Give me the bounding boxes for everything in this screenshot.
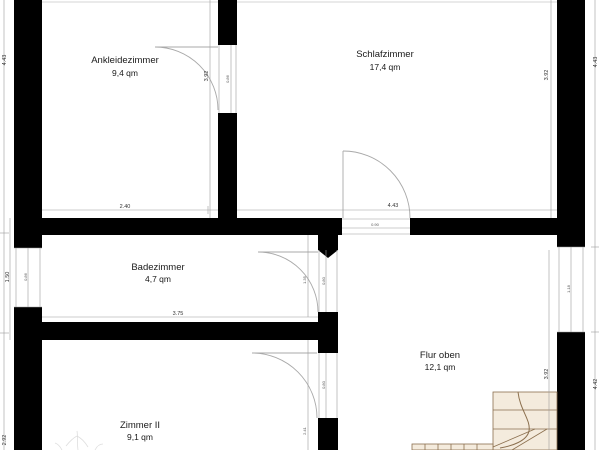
dim-zimmer2-door-offset: 2.41: [302, 426, 307, 435]
dim-left-outer-bottom: 2.92: [2, 435, 8, 446]
wall-bad-zimmer-divider: [14, 322, 318, 340]
room-area-schlafzimmer: 17,4 qm: [370, 62, 401, 72]
wall-middle-left: [14, 218, 342, 235]
floor-plan-canvas: 4.43 1.50 0.86 2.92 3.92 0.86 2.40 4.43 …: [0, 0, 600, 450]
dim-right-inner-bottom: 3.92: [544, 369, 550, 380]
wall-flur-stub-miter: [318, 250, 338, 258]
room-name-zimmer-2: Zimmer II: [120, 420, 160, 431]
wall-flur-stub-bottom: [318, 418, 338, 450]
room-name-flur-oben: Flur oben: [420, 350, 460, 361]
wall-right-lower: [557, 332, 585, 450]
door-swing-arc: [252, 353, 317, 418]
dim-bad-door-offset: 1.35: [302, 275, 307, 284]
plant-sketch-watermark: [55, 431, 103, 450]
dim-top-door-width: 0.86: [225, 74, 230, 83]
dim-left-outer-top: 4.43: [2, 55, 8, 66]
wall-left-upper: [14, 0, 42, 248]
walls: [14, 0, 585, 450]
stairs-upper-flight: [493, 392, 557, 450]
room-name-schlafzimmer: Schlafzimmer: [356, 49, 414, 60]
dim-right-outer-bottom: 4.42: [593, 379, 599, 390]
dim-left-inner-mid: 1.50: [5, 272, 11, 283]
room-area-ankleidezimmer: 9,4 qm: [112, 68, 138, 78]
room-area-flur-oben: 12,1 qm: [425, 362, 456, 372]
room-labels: Ankleidezimmer 9,4 qm Schlafzimmer 17,4 …: [91, 49, 460, 442]
floorplan-svg: 4.43 1.50 0.86 2.92 3.92 0.86 2.40 4.43 …: [0, 0, 600, 450]
dim-right-window: 1.18: [566, 284, 571, 293]
stairs: [412, 392, 557, 450]
wall-top-divider-lower: [218, 113, 237, 218]
dim-top-room-height: 3.92: [204, 71, 210, 82]
door-swing-arc: [258, 252, 318, 312]
dim-zimmer2-door-width: 0.80: [321, 380, 326, 389]
dim-badezimmer-width: 3.75: [173, 311, 184, 317]
door-swing-arc: [343, 151, 410, 218]
dim-right-inner-top: 3.92: [544, 70, 550, 81]
room-area-badezimmer: 4,7 qm: [145, 274, 171, 284]
door-ankleidezimmer: [155, 45, 236, 113]
dim-bad-door-width: 0.80: [321, 276, 326, 285]
dim-right-outer-top: 4.43: [593, 57, 599, 68]
wall-flur-stub-middle: [318, 312, 338, 353]
wall-right-upper: [557, 0, 585, 247]
dim-schlafzimmer-width: 4.43: [388, 203, 399, 209]
room-area-zimmer-2: 9,1 qm: [127, 432, 153, 442]
window-left-badezimmer: [14, 248, 42, 307]
dim-left-window: 0.86: [23, 272, 28, 281]
wall-flur-stub-top: [318, 235, 338, 250]
dim-ankleide-width: 2.40: [120, 204, 131, 210]
wall-top-divider-upper: [218, 0, 237, 45]
wall-middle-right: [410, 218, 585, 235]
dim-flur-door-width: 0.90: [371, 222, 380, 227]
room-name-badezimmer: Badezimmer: [131, 262, 184, 273]
dimension-labels: 4.43 1.50 0.86 2.92 3.92 0.86 2.40 4.43 …: [2, 55, 599, 446]
room-name-ankleidezimmer: Ankleidezimmer: [91, 55, 159, 66]
stairs-lower-flight: [412, 444, 493, 450]
